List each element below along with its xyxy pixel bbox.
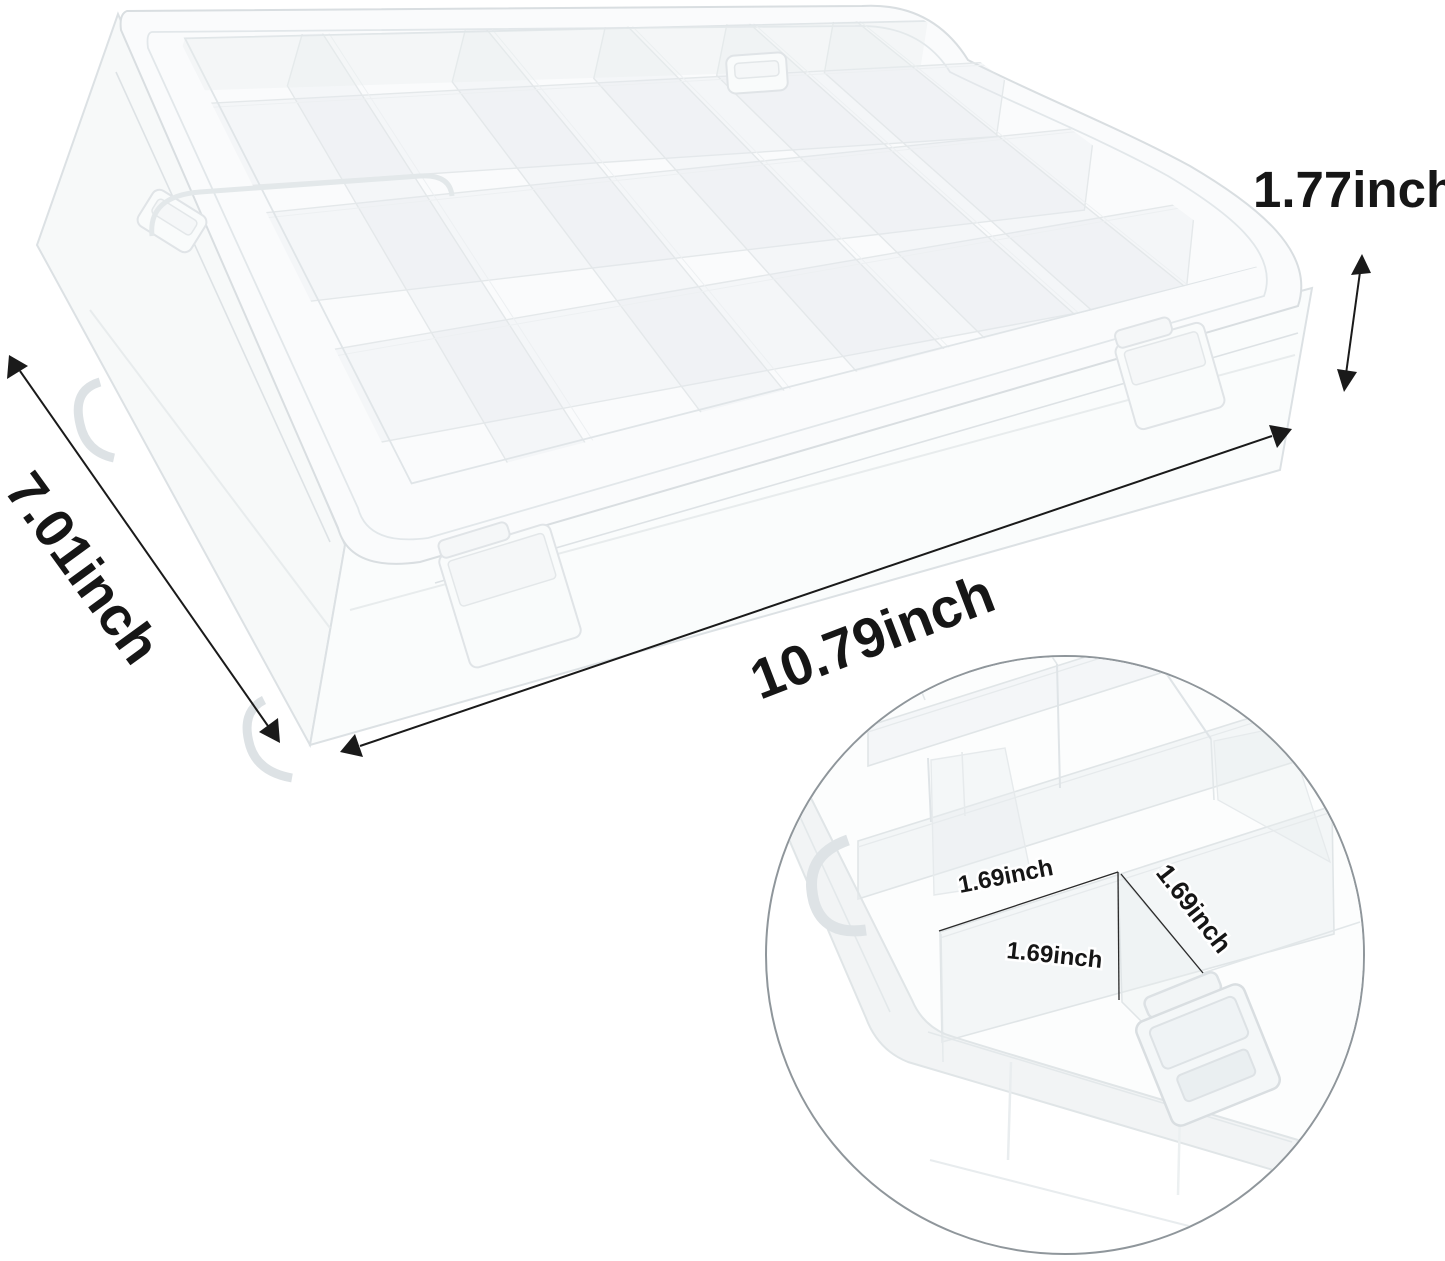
- svg-text:1.77inch: 1.77inch: [1253, 161, 1445, 218]
